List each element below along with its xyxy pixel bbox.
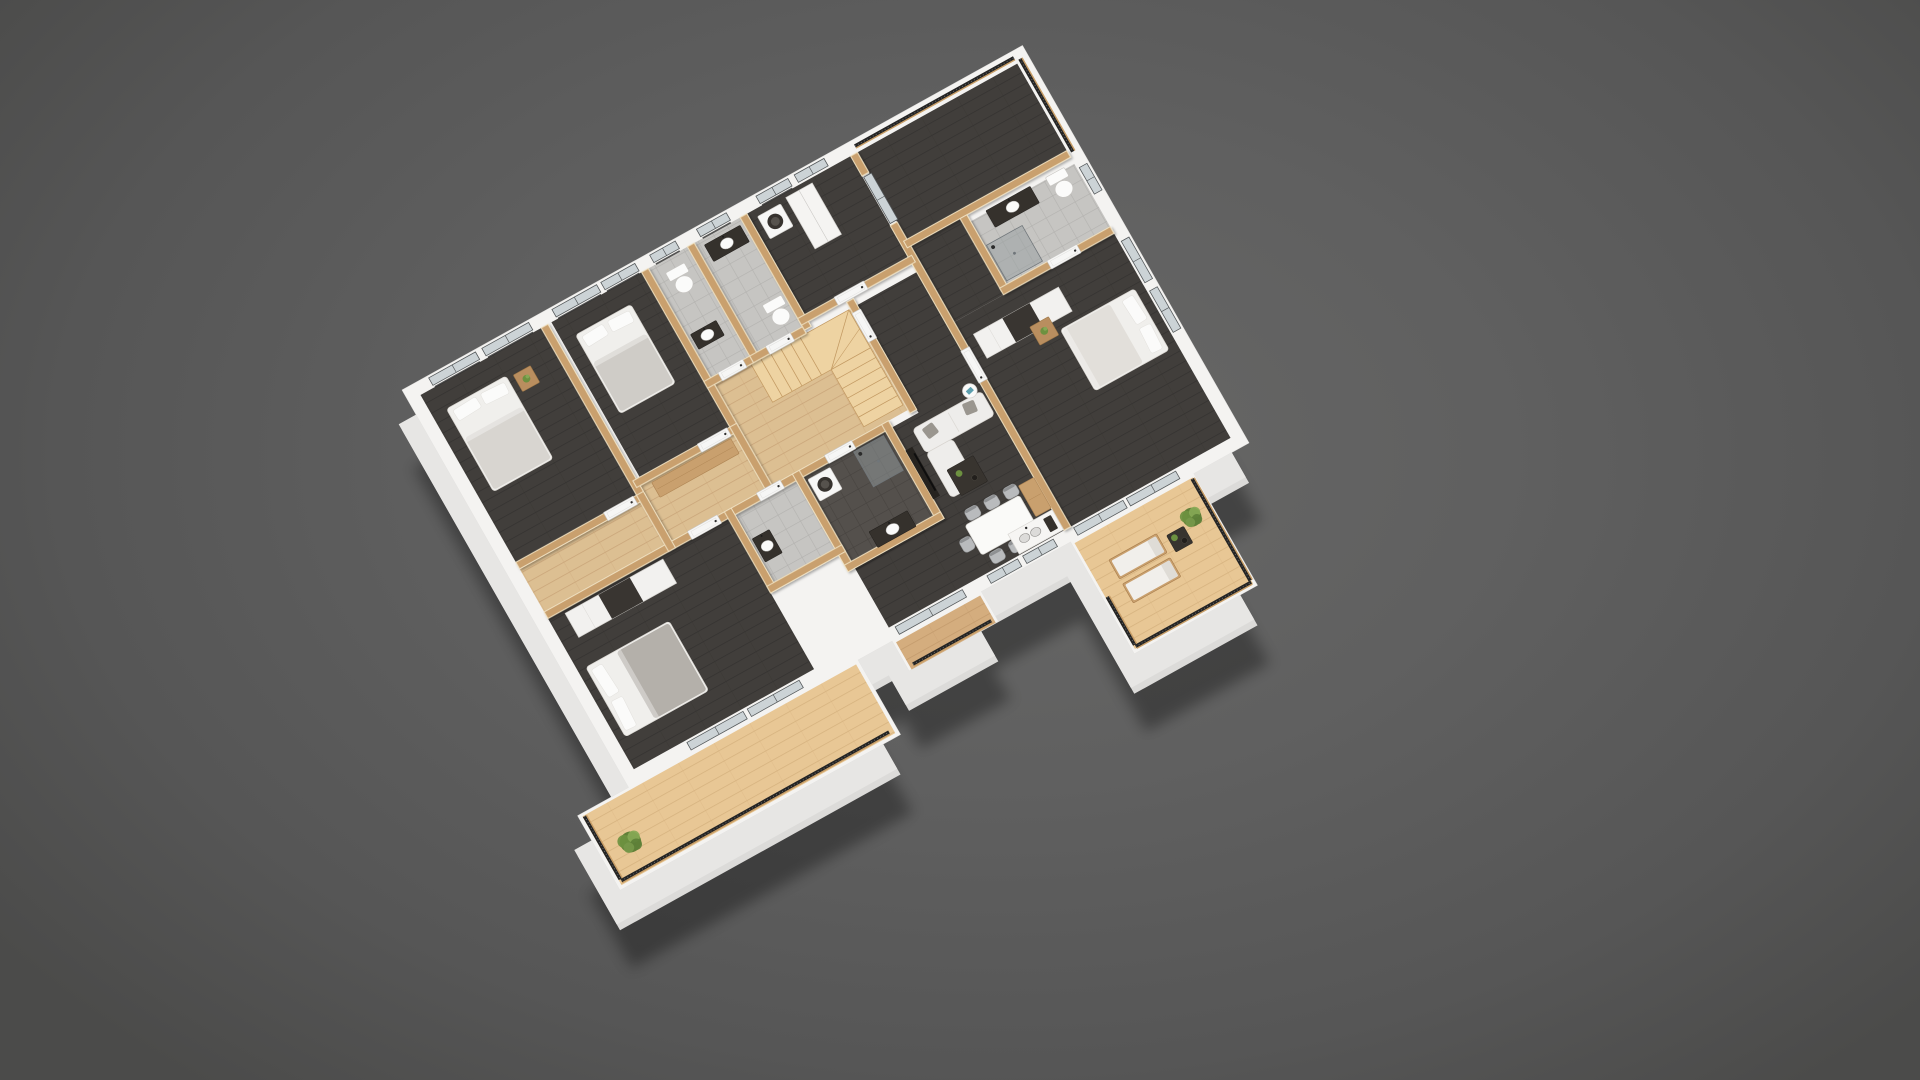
apartment-3d-floorplan bbox=[0, 0, 1920, 1080]
